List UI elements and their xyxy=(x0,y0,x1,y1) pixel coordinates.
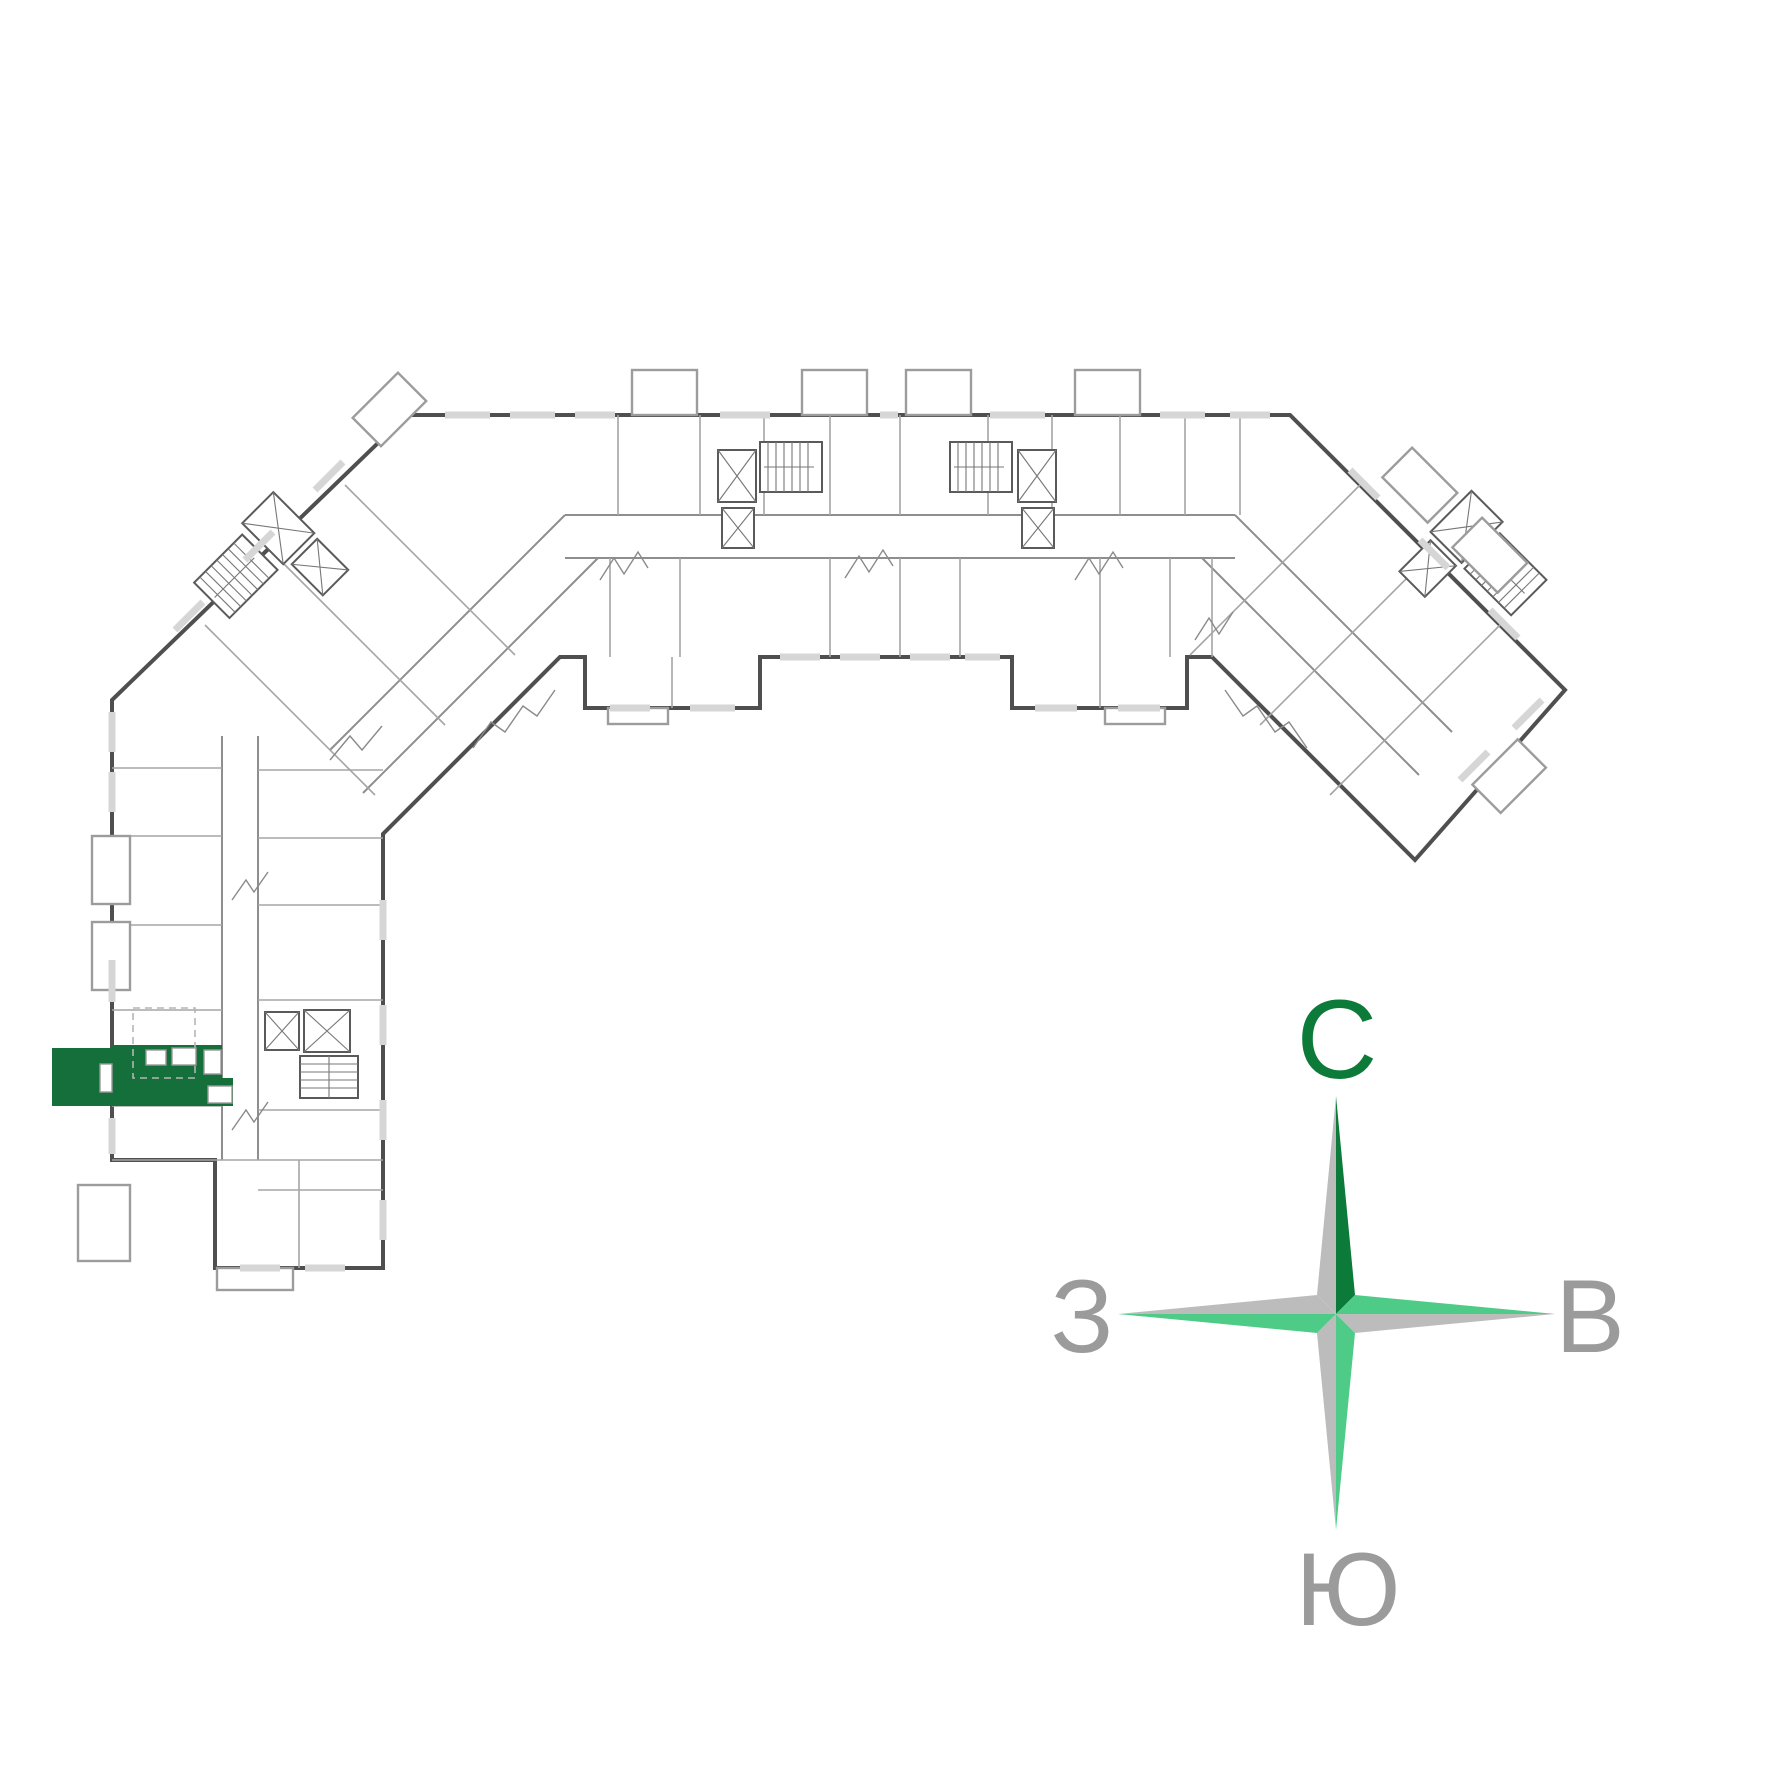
floor-plan-page: С З В Ю xyxy=(0,0,1776,1776)
compass-west-top xyxy=(1118,1295,1336,1314)
compass-south-right xyxy=(1336,1314,1355,1530)
balcony-door xyxy=(100,1064,112,1092)
fixture xyxy=(172,1048,196,1065)
compass-east-bottom xyxy=(1336,1314,1555,1333)
compass-label-east: В xyxy=(1555,1259,1624,1375)
compass-label-north: С xyxy=(1297,977,1378,1102)
balcony xyxy=(92,836,130,904)
compass-south-left xyxy=(1317,1314,1336,1530)
compass-west-bottom xyxy=(1118,1314,1336,1333)
floor-plan-canvas: С З В Ю xyxy=(0,0,1776,1776)
compass-north-left xyxy=(1317,1096,1336,1314)
compass-label-south: Ю xyxy=(1295,1532,1400,1648)
fixture xyxy=(204,1050,221,1074)
balcony xyxy=(1075,370,1140,415)
balcony xyxy=(78,1185,130,1261)
compass-rose: С З В Ю xyxy=(1051,977,1625,1648)
compass-east-top xyxy=(1336,1295,1555,1314)
balcony xyxy=(906,370,971,415)
fixture xyxy=(146,1050,166,1065)
building-outline xyxy=(112,415,1565,1268)
balcony xyxy=(1382,448,1457,523)
balcony xyxy=(632,370,697,415)
compass-label-west: З xyxy=(1051,1259,1114,1375)
fixture xyxy=(208,1086,232,1103)
balcony xyxy=(802,370,867,415)
compass-north-right xyxy=(1336,1096,1355,1314)
